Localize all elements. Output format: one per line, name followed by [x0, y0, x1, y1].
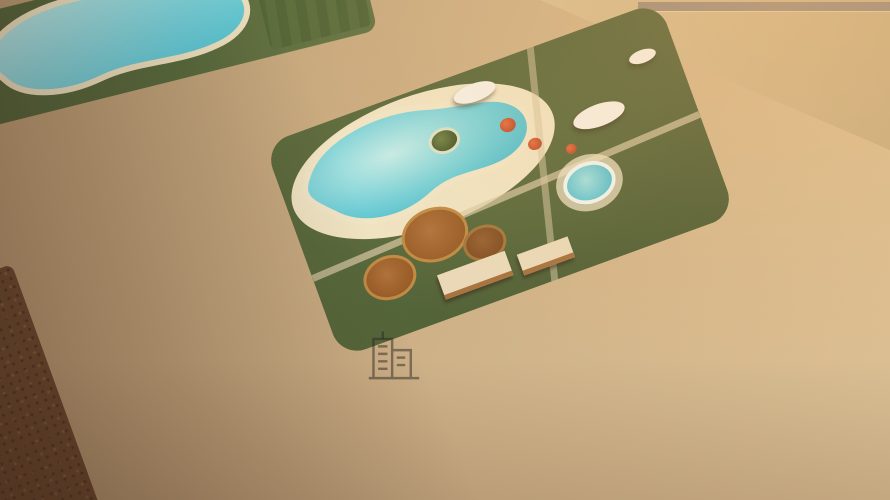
- buildings-icon: [366, 320, 422, 384]
- aerial-community-photo: [0, 0, 890, 500]
- street-extras: [0, 0, 890, 500]
